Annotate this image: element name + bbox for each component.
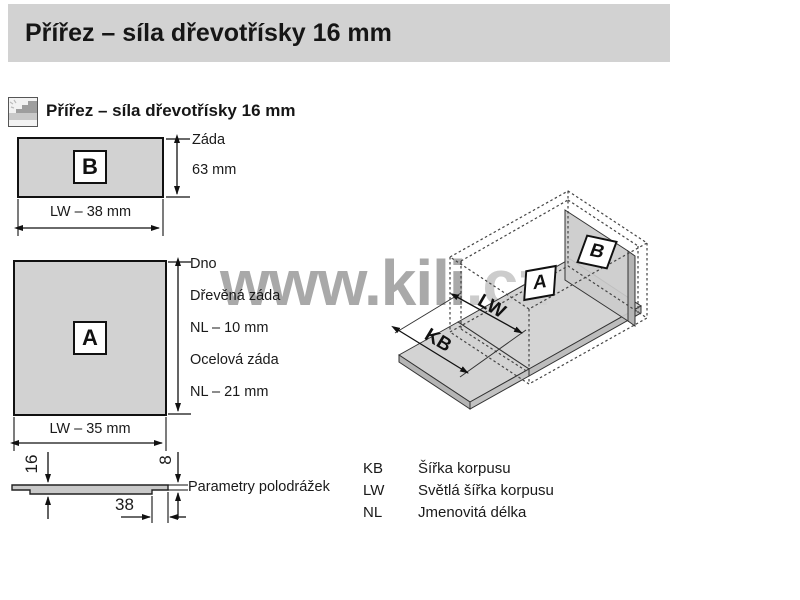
legend-desc-kb: Šířka korpusu <box>418 460 511 477</box>
legend-abbr-lw: LW <box>363 482 384 499</box>
iso-drawing <box>395 191 647 409</box>
page-title: Přířez – síla dřevotřísky 16 mm <box>8 19 392 48</box>
profile-rabbet-thickness-dim: 8 <box>156 450 176 470</box>
panel-b-idbox: B <box>73 150 107 184</box>
legend-abbr-nl: NL <box>363 504 382 521</box>
panel-a-letter: A <box>82 325 98 351</box>
panel-b-letter: B <box>82 154 98 180</box>
panel-a-idbox: A <box>73 321 107 355</box>
panel-a-side-label-0: Dno <box>190 255 217 273</box>
panel-a-side-label-2: NL – 10 mm <box>190 319 268 337</box>
iso-b-letter: B <box>586 240 607 264</box>
legend-abbr-kb: KB <box>363 460 383 477</box>
profile-thickness-dim: 16 <box>22 444 42 484</box>
iso-a-idbox: A <box>523 265 557 301</box>
panel-a-width-label: LW – 35 mm <box>14 420 166 438</box>
chipboard-icon <box>8 97 38 127</box>
profile-rabbet-width-dim: 38 <box>115 495 134 515</box>
panel-a-side-label-1: Dřevěná záda <box>190 287 280 305</box>
profile-label: Parametry polodrážek <box>188 478 330 496</box>
panel-b-height-label-2: 63 mm <box>192 161 236 179</box>
panel-b-width-label: LW – 38 mm <box>18 203 163 221</box>
legend-desc-nl: Jmenovitá délka <box>418 504 526 521</box>
panel-a-side-label-4: NL – 21 mm <box>190 383 268 401</box>
profile-shape <box>12 485 168 494</box>
section-title: Přířez – síla dřevotřísky 16 mm <box>46 101 295 121</box>
header-bar: Přířez – síla dřevotřísky 16 mm <box>8 4 670 62</box>
panel-a-side-label-3: Ocelová záda <box>190 351 279 369</box>
legend-desc-lw: Světlá šířka korpusu <box>418 482 554 499</box>
iso-a-letter: A <box>532 270 547 295</box>
panel-b-height-label-1: Záda <box>192 131 225 149</box>
